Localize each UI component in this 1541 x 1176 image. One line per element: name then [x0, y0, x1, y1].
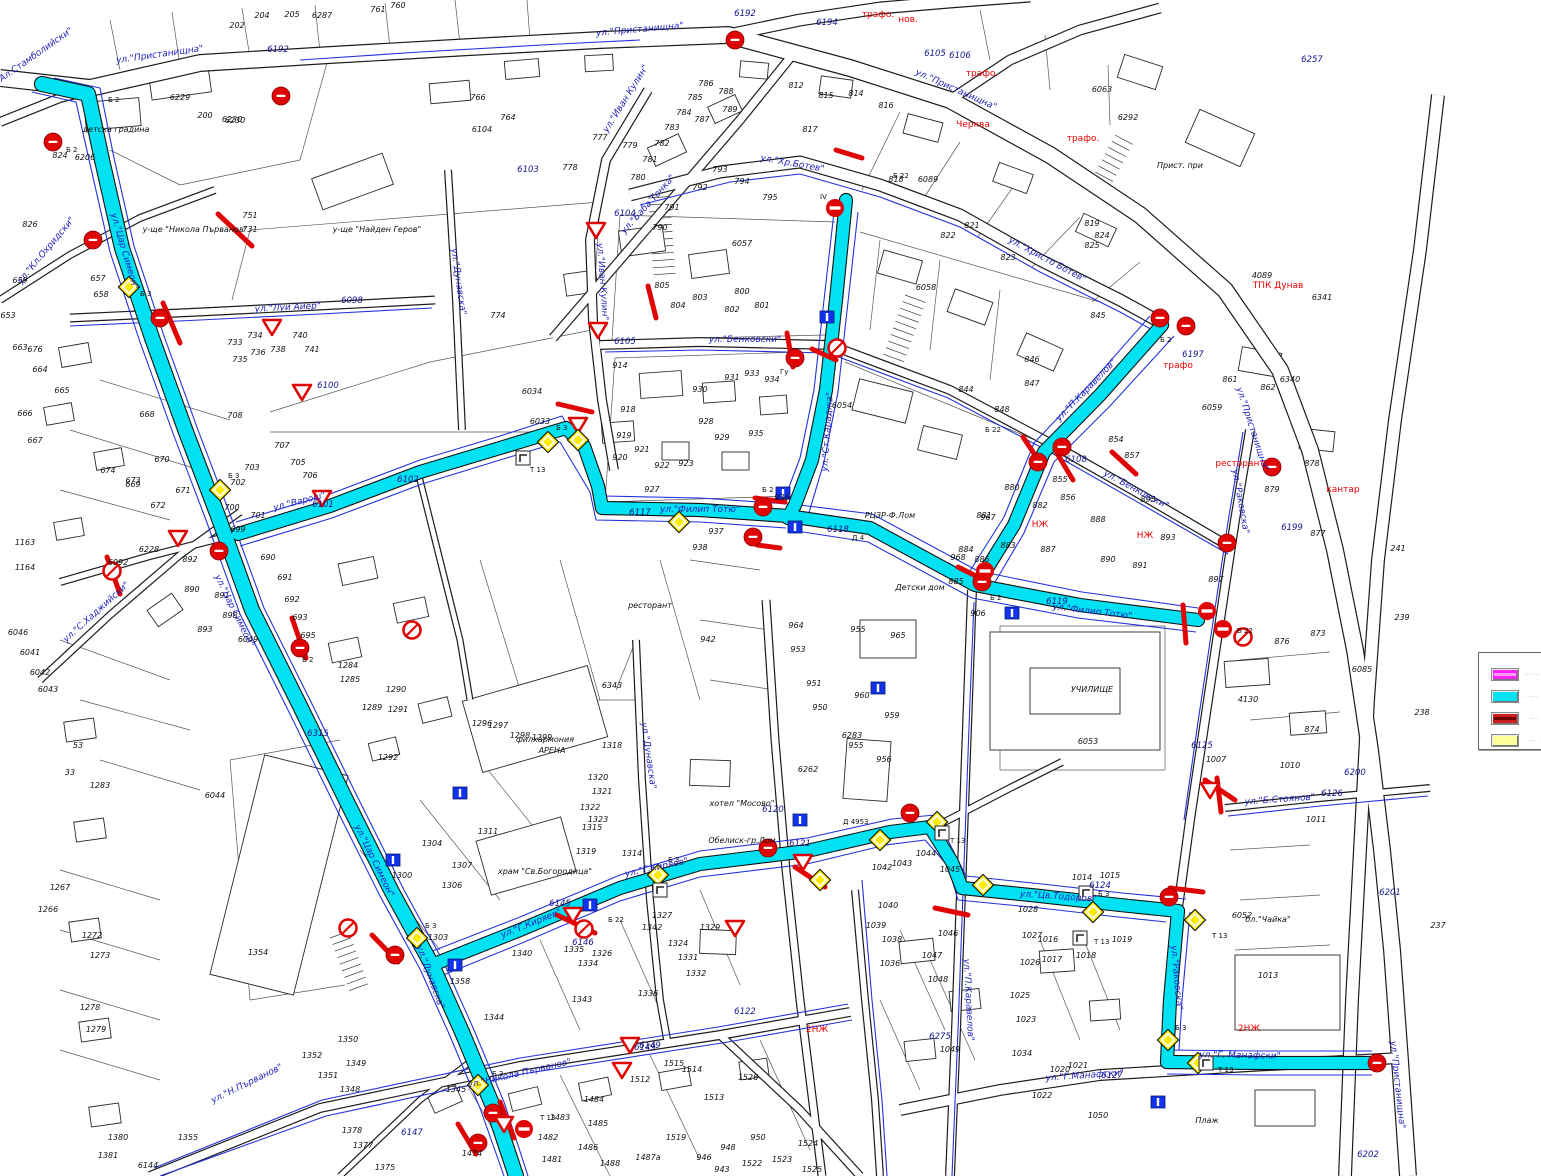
parcel-number: 795 — [762, 193, 777, 202]
parcel-number: 701 — [250, 511, 265, 520]
parcel-number: 1375 — [375, 1163, 395, 1172]
parcel-number: 855 — [1052, 475, 1067, 484]
parcel-strip — [335, 944, 354, 951]
stop-sign-glyph — [731, 39, 740, 41]
info-sign-glyph — [454, 961, 456, 969]
sign-code-label: Т 13 — [949, 837, 965, 845]
sign-code-label: Т 13 — [529, 466, 545, 474]
parcel-number: 1285 — [340, 675, 360, 684]
no-entry-glyph — [519, 1127, 530, 1130]
parcel-number: 874 — [1304, 725, 1319, 734]
parcel-number: 1513 — [704, 1093, 724, 1102]
parcel-number: 802 — [724, 305, 739, 314]
parcel-number: 1011 — [1306, 815, 1326, 824]
parcel-number: 1015 — [1100, 871, 1120, 880]
parcel-number: 740 — [292, 331, 307, 340]
building — [338, 556, 378, 585]
parcel-number: 200 — [197, 111, 212, 120]
parcel-number: 887 — [1040, 545, 1056, 554]
road-fill — [0, 35, 1408, 1176]
parcel-number: 1007 — [1206, 755, 1227, 764]
parcel-number: 951 — [806, 679, 821, 688]
parcel-number: 6042 — [30, 668, 50, 677]
building — [585, 54, 614, 71]
stop-sign-glyph — [906, 812, 915, 814]
road-casing — [950, 8, 1160, 100]
parcel-number: 1488 — [600, 1159, 620, 1168]
parcel-boundary — [1240, 652, 1330, 660]
parcel-number: 893 — [197, 625, 212, 634]
street-name-label: ул."Филип Тотю" — [659, 505, 740, 515]
sign-code-label: Б 22 — [608, 916, 624, 924]
landmark-red-label: нов. — [898, 15, 918, 25]
parcel-number: 934 — [764, 375, 779, 384]
parcel-number: 1045 — [940, 865, 960, 874]
parcel-number: 785 — [687, 93, 702, 102]
stop-sign-glyph — [49, 141, 58, 143]
closure-bar-icon — [648, 286, 656, 318]
parcel-boundary — [870, 240, 880, 330]
parcel-number: 6206 — [75, 153, 95, 162]
parcel-number: 923 — [678, 459, 693, 468]
parcel-number: 1283 — [90, 781, 110, 790]
parcel-number: 814 — [848, 89, 863, 98]
building — [918, 426, 963, 460]
landmark-red-label: кантар — [1326, 485, 1360, 495]
stop-sign-glyph — [764, 847, 773, 849]
parcel-boundary — [60, 990, 160, 1020]
parcel-strip — [900, 308, 921, 316]
parcel-number: 955 — [848, 741, 863, 750]
parcel-number: 1311 — [478, 827, 498, 836]
sign-code-label: Б 3 — [1098, 890, 1109, 898]
parcel-number: 1027 — [1022, 931, 1043, 940]
parcel-number: 6287 — [312, 11, 333, 20]
parcel-number: 873 — [1310, 629, 1325, 638]
parcel-number: 935 — [748, 429, 763, 438]
stop-sign-glyph — [215, 550, 224, 552]
parcel-strip — [883, 354, 904, 362]
parcel-number: 1485 — [588, 1119, 608, 1128]
parcel-number: 1344 — [484, 1013, 504, 1022]
parcel-number: 1272 — [82, 931, 102, 940]
parcel-number: 960 — [854, 691, 869, 700]
legend-item-label: · ··· ·· — [1525, 738, 1541, 743]
parcel-strip — [1112, 141, 1130, 150]
building — [1017, 333, 1063, 371]
parcel-number: 1025 — [1010, 991, 1030, 1000]
landmark-red-label: ТПК Дунав — [1252, 281, 1304, 291]
parcel-boundary — [980, 10, 990, 60]
parcel-number: 803 — [692, 293, 707, 302]
parcel-number: 1039 — [866, 921, 886, 930]
parcel-number: 664 — [32, 365, 47, 374]
parcel-number: 790 — [652, 223, 667, 232]
parcel-number: 6343 — [602, 681, 622, 690]
building — [418, 697, 452, 724]
parcel-boundary — [250, 202, 600, 230]
sign-code-label: Б 3 — [1175, 1024, 1186, 1032]
parcel-number: 1329 — [700, 923, 720, 932]
sign-code-label: Гу — [780, 368, 788, 376]
parcel-number: 792 — [692, 183, 707, 192]
sign-code-label: IV — [820, 193, 827, 201]
parcel-number: 791 — [664, 203, 679, 212]
street-code-number: 6194 — [816, 18, 838, 28]
building — [903, 114, 943, 143]
info-sign-glyph — [1011, 609, 1013, 617]
stop-sign-glyph — [1165, 896, 1174, 898]
parcel-number: 738 — [270, 345, 285, 354]
landmark-red-label: ресторант — [1215, 459, 1264, 469]
street-code-number: 6199 — [1281, 523, 1303, 533]
parcel-number: 238 — [1414, 708, 1429, 717]
parcel-number: 658 — [93, 290, 108, 299]
parcel-number: 819 — [1084, 219, 1099, 228]
parcel-number: 741 — [304, 345, 319, 354]
parcel-number: 1334 — [578, 959, 598, 968]
parcel-number: 778 — [562, 163, 577, 172]
parcel-boundary — [1235, 945, 1330, 950]
street-code-number: 6103 — [517, 165, 539, 175]
parcel-number: 6057 — [732, 239, 753, 248]
place-label: детска градина — [82, 125, 150, 134]
parcel-number: 1163 — [15, 538, 35, 547]
parcel-strip — [653, 266, 675, 268]
parcel-number: 673 — [125, 476, 140, 485]
parcel-number: 804 — [670, 301, 685, 310]
parcel-strip — [653, 273, 675, 275]
parcel-number: 6059 — [1202, 403, 1222, 412]
street-name-label: ул."С.Хаджийски" — [61, 580, 132, 645]
parcel-number: 241 — [1390, 544, 1405, 553]
parcel-number: 1340 — [512, 949, 532, 958]
parcel-number: 1026 — [1020, 958, 1040, 967]
parcel-strip — [888, 341, 909, 349]
parcel-number: 1522 — [742, 1159, 762, 1168]
parcel-number: 893 — [1160, 533, 1175, 542]
parcel-number: 764 — [500, 113, 515, 122]
map-legend: ·· ····· ·· ····· ····· ···· ···· ···· ·… — [1478, 652, 1541, 750]
parcel-strip — [891, 334, 912, 342]
place-label: РЦЗР-Ф.Лом — [865, 511, 915, 520]
parcel-number: 942 — [700, 635, 715, 644]
parcel-number: 703 — [244, 463, 259, 472]
place-label: ресторант — [627, 601, 672, 610]
building — [147, 593, 183, 627]
sign-code-label: Б 22 — [1237, 627, 1253, 635]
parcel-number: 6144 — [138, 1161, 158, 1170]
parcel-number: 1487a — [635, 1153, 660, 1162]
parcel-number: 693 — [292, 613, 307, 622]
parcel-boundary — [300, 52, 330, 160]
parcel-number: 879 — [1264, 485, 1279, 494]
sign-code-label: Т 13 — [1211, 932, 1227, 940]
landmark-red-label: НЖ — [1137, 531, 1154, 541]
building — [312, 153, 394, 210]
street-code-number: 6118 — [827, 525, 849, 535]
building — [690, 759, 731, 786]
parcel-number: 1345 — [446, 1085, 466, 1094]
parcel-number: 700 — [224, 503, 239, 512]
parcel-number: 784 — [676, 108, 691, 117]
landmark-red-label: трафо. — [966, 69, 999, 79]
sign-code-label: Б 2 — [990, 594, 1001, 602]
parcel-number: 676 — [27, 345, 42, 354]
legend-item: · ···· ··· — [1491, 709, 1541, 727]
street-code-number: 6105 — [924, 49, 946, 59]
parcel-number: 6262 — [798, 765, 818, 774]
parcel-number: 6104 — [472, 125, 492, 134]
parcel-number: 1314 — [622, 849, 642, 858]
street-code-number: 6146 — [572, 938, 594, 948]
parcel-number: 1036 — [880, 959, 900, 968]
parcel-number: 906 — [970, 609, 985, 618]
parcel-number: 968 — [950, 553, 965, 562]
sign-code-label: Б 22 — [893, 172, 909, 180]
road-fill — [60, 534, 237, 582]
parcel-number: 929 — [714, 433, 729, 442]
parcel-number: 825 — [1084, 241, 1099, 250]
parcel-number: 880 — [1004, 483, 1019, 492]
street-code-number: 6106 — [949, 51, 971, 61]
parcel-number: 787 — [694, 115, 710, 124]
legend-item: · ···· ··· — [1491, 687, 1541, 705]
parcel-number: 1292 — [378, 753, 398, 762]
parcel-number: 779 — [622, 141, 637, 150]
parcel-strip — [1099, 166, 1117, 175]
parcel-number: 777 — [592, 133, 608, 142]
parcel-boundary — [1108, 65, 1110, 125]
route-guide-line — [1167, 1074, 1372, 1075]
parcel-number: 1040 — [878, 901, 898, 910]
stop-sign-glyph — [1058, 446, 1067, 448]
parcel-number: 891 — [1132, 561, 1147, 570]
place-label: у-ще "Найден Геров" — [332, 225, 421, 234]
parcel-number: 1273 — [90, 951, 110, 960]
parcel-number: 6044 — [205, 791, 225, 800]
parcel-number: 1307 — [452, 861, 473, 870]
parcel-number: 1377 — [353, 1141, 374, 1150]
parcel-number: 788 — [718, 87, 733, 96]
parcel-boundary — [180, 160, 300, 185]
place-label: у-ще "Никола Първанов" — [142, 225, 248, 234]
parcel-number: 1320 — [588, 773, 608, 782]
info-sign-glyph — [799, 816, 801, 824]
building — [54, 518, 85, 541]
sign-code-label: Б 2 — [762, 486, 773, 494]
sign-code-label: Б 3 — [556, 424, 567, 432]
parcel-number: 735 — [232, 355, 247, 364]
parcel-number: 918 — [620, 405, 635, 414]
parcel-number: 1482 — [538, 1133, 558, 1142]
landmark-red-label: Черква — [956, 120, 990, 130]
parcel-number: 1318 — [602, 741, 622, 750]
parcel-number: 933 — [744, 369, 759, 378]
parcel-number: 876 — [1274, 637, 1289, 646]
closure-bar-icon — [836, 150, 862, 158]
parcel-number: 921 — [634, 445, 649, 454]
map-canvas: 2002022042056206622962307518248266576596… — [0, 0, 1541, 1176]
parcel-number: 33 — [65, 768, 75, 777]
parcel-boundary — [242, 8, 250, 58]
parcel-number: 1303 — [428, 933, 448, 942]
parcel-number: 826 — [22, 220, 37, 229]
sign-code-label: Б 3 — [140, 290, 151, 298]
parcel-number: 1046 — [938, 929, 958, 938]
legend-title: ·· ····· — [1479, 653, 1541, 661]
parcel-boundary — [930, 260, 940, 350]
building — [89, 1103, 121, 1127]
parcel-number: 946 — [696, 1153, 711, 1162]
parcel-boundary — [100, 760, 200, 790]
closure-bar-icon — [1183, 605, 1186, 643]
parcel-number: 823 — [1000, 253, 1015, 262]
parcel-number: 766 — [470, 93, 485, 102]
parcel-number: 956 — [876, 755, 891, 764]
parcel-number: 6085 — [1352, 665, 1372, 674]
building — [393, 597, 428, 623]
parcel-number: 670 — [154, 455, 169, 464]
parcel-boundary — [700, 620, 770, 630]
building — [1235, 955, 1340, 1030]
street-code-number: 6149 — [634, 1043, 656, 1053]
parcel-number: 653 — [0, 311, 15, 320]
t13-sign-icon — [1073, 931, 1087, 945]
parcel-number: 890 — [1100, 555, 1115, 564]
parcel-number: 760 — [390, 1, 405, 10]
parcel-number: 793 — [712, 165, 727, 174]
no-entry-glyph — [830, 206, 841, 209]
parcel-strip — [340, 957, 359, 964]
parcel-number: 897 — [1208, 575, 1224, 584]
sign-code-label: Д 4 — [852, 534, 865, 542]
parcel-number: 774 — [490, 311, 505, 320]
building — [722, 452, 749, 470]
street-code-number: 6275 — [929, 1032, 951, 1042]
parcel-number: 892 — [182, 555, 197, 564]
parcel-number: 1290 — [386, 685, 406, 694]
parcel-number: 848 — [994, 405, 1009, 414]
parcel-number: 667 — [27, 436, 43, 445]
parcel-number: 1038 — [882, 935, 902, 944]
parcel-number: 928 — [698, 417, 713, 426]
street-code-number: 6121 — [789, 839, 811, 849]
parcel-number: 1021 — [1068, 1061, 1088, 1070]
legend-swatch-icon — [1491, 690, 1519, 703]
parcel-strip — [905, 295, 926, 303]
parcel-number: 1354 — [248, 948, 268, 957]
parcel-number: 1336 — [638, 989, 658, 998]
parcel-number: 1348 — [340, 1085, 360, 1094]
parcel-number: 1278 — [80, 1003, 100, 1012]
parcel-number: 204 — [254, 11, 269, 20]
parcel-number: 1486 — [578, 1143, 598, 1152]
parcel-number: 1524 — [798, 1139, 818, 1148]
parcel-number: 1322 — [580, 803, 600, 812]
parcel-boundary — [660, 560, 700, 700]
parcel-number: 671 — [175, 486, 190, 495]
street-code-number: 6202 — [1357, 1150, 1379, 1160]
parcel-strip — [895, 321, 916, 329]
parcel-number: 4089 — [1252, 271, 1272, 280]
place-label: АРЕНА — [538, 746, 566, 755]
stop-sign-glyph — [1373, 1062, 1382, 1064]
stop-sign-glyph — [1182, 325, 1191, 327]
sign-code-label: Б 2 — [66, 146, 77, 154]
parcel-number: 783 — [664, 123, 679, 132]
building — [508, 1087, 541, 1112]
street-code-number: 6257 — [1301, 55, 1323, 65]
parcel-number: 786 — [698, 79, 713, 88]
parcel-number: 6041 — [20, 648, 40, 657]
building — [429, 80, 471, 103]
parcel-number: 1526 — [738, 1073, 758, 1082]
parcel-number: 6043 — [38, 685, 58, 694]
parcel-number: 1044 — [916, 849, 936, 858]
parcel-number: 691 — [277, 573, 292, 582]
building — [947, 289, 993, 325]
parcel-number: 931 — [724, 373, 739, 382]
street-code-number: 6117 — [629, 508, 651, 518]
yield-sign-icon — [293, 385, 311, 400]
parcel-number: 666 — [17, 409, 32, 418]
place-label: Плаж — [1195, 1116, 1219, 1125]
parcel-number: 817 — [802, 125, 818, 134]
parcel-strip — [332, 938, 351, 945]
parcel-boundary — [615, 352, 800, 358]
building — [1089, 999, 1120, 1021]
sign-code-label: Б 2 — [1160, 336, 1171, 344]
parcel-number: 824 — [1094, 231, 1109, 240]
parcel-number: 1481 — [542, 1155, 562, 1164]
info-sign-glyph — [589, 901, 591, 909]
parcel-number: 1327 — [652, 911, 673, 920]
parcel-number: 1306 — [442, 881, 462, 890]
parcel-number: 844 — [958, 385, 973, 394]
parcel-strip — [1105, 154, 1123, 163]
parcel-number: 672 — [150, 501, 165, 510]
parcel-number: 1297 — [488, 721, 509, 730]
building — [860, 620, 916, 658]
parcel-strip — [349, 984, 368, 991]
parcel-number: 964 — [788, 621, 803, 630]
parcel-number: 882 — [1032, 501, 1047, 510]
parcel-number: 657 — [90, 274, 106, 283]
parcel-number: 927 — [644, 485, 660, 494]
sign-code-label: Т 13 — [1093, 938, 1109, 946]
parcel-number: 6340 — [1280, 375, 1300, 384]
building — [74, 818, 106, 842]
parcel-number: 1017 — [1042, 955, 1063, 964]
parcel-strip — [652, 259, 674, 261]
place-label: Обелиск-гр.Лом — [708, 836, 775, 845]
parcel-boundary — [385, 3, 390, 48]
parcel-number: 1291 — [388, 705, 408, 714]
parcel-number: 1514 — [682, 1065, 702, 1074]
parcel-number: 1351 — [318, 1071, 338, 1080]
route-street-casing — [42, 84, 516, 1176]
building — [504, 59, 539, 80]
parcel-number: 1343 — [572, 995, 592, 1004]
parcel-number: 816 — [878, 101, 893, 110]
parcel-number: 920 — [612, 453, 627, 462]
road-fill — [933, 762, 1062, 828]
parcel-number: 1043 — [892, 859, 912, 868]
t13-sign-icon — [653, 883, 667, 897]
stop-sign-glyph — [791, 357, 800, 359]
street-name-label: ул."Бенковски" — [708, 335, 781, 345]
